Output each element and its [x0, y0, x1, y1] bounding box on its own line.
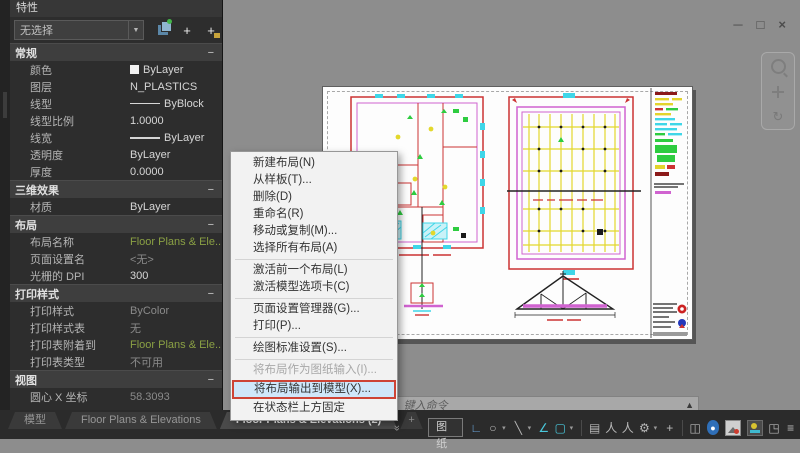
property-row-plot-attached[interactable]: 打印表附着到 Floor Plans & Ele... [10, 336, 222, 353]
property-value: <无> [130, 251, 154, 267]
property-row-transparency[interactable]: 透明度 ByLayer [10, 146, 222, 163]
property-value: Floor Plans & Ele... [130, 236, 222, 248]
paper-space-toggle[interactable]: 图纸 [428, 418, 463, 437]
menu-item-export-layout-to-model[interactable]: 将布局输出到模型(X)... [232, 380, 396, 399]
lineweight-swatch [130, 137, 160, 139]
close-icon[interactable]: × [778, 17, 786, 32]
menu-separator [235, 298, 393, 299]
property-value: 不可用 [130, 354, 163, 370]
property-label: 线型比例 [10, 113, 130, 129]
property-value: ByBlock [164, 98, 204, 110]
section-header-view[interactable]: 视图 − [10, 370, 222, 388]
property-label: 打印样式 [10, 303, 130, 319]
property-value: 无 [130, 320, 141, 336]
clean-screen-icon[interactable] [747, 420, 763, 436]
property-value: N_PLASTICS [130, 81, 197, 93]
ortho-mode-icon[interactable]: ╲ [511, 418, 526, 437]
separator [682, 420, 683, 436]
menu-item-activate-previous-layout[interactable]: 激活前一个布局(L) [231, 262, 397, 279]
property-value: ByLayer [164, 132, 204, 144]
property-value: Floor Plans & Ele... [130, 339, 222, 351]
orbit-icon[interactable]: ↻ [773, 110, 784, 123]
property-row-thickness[interactable]: 厚度 0.0000 [10, 163, 222, 180]
chevron-down-icon[interactable]: « [391, 424, 403, 430]
menu-separator [235, 259, 393, 260]
quick-select-icon[interactable] [154, 21, 172, 39]
property-label: 颜色 [10, 62, 130, 78]
linetype-swatch [130, 103, 160, 104]
property-label: 页面设置名 [10, 251, 130, 267]
menu-item-plot[interactable]: 打印(P)... [231, 318, 397, 335]
menu-item-new-layout[interactable]: 新建布局(N) [231, 155, 397, 172]
section-title: 三维效果 [15, 182, 59, 198]
property-row-page-setup[interactable]: 页面设置名 <无> [10, 250, 222, 267]
chevron-down-icon[interactable]: ▾ [502, 424, 509, 432]
chevron-down-icon[interactable]: ▼ [128, 21, 143, 39]
minimize-icon[interactable]: ─ [733, 17, 742, 32]
palette-grip[interactable] [0, 0, 10, 410]
property-label: 透明度 [10, 147, 130, 163]
menu-separator [235, 359, 393, 360]
collapse-icon[interactable]: − [208, 219, 214, 231]
collapse-icon[interactable]: − [208, 374, 214, 386]
scale-list-icon[interactable]: ◫ [688, 418, 703, 437]
property-label: 打印样式表 [10, 320, 130, 336]
selection-dropdown[interactable]: 无选择 ▼ [14, 20, 144, 40]
property-row-layout-name[interactable]: 布局名称 Floor Plans & Ele... [10, 233, 222, 250]
select-objects-icon[interactable]: + [178, 21, 196, 39]
polar-tracking-icon[interactable]: ∠ [536, 418, 551, 437]
menu-item-activate-model-tab[interactable]: 激活模型选项卡(C) [231, 279, 397, 296]
window-controls: ─ □ × [733, 17, 786, 32]
toggle-pickadd-icon[interactable]: + [202, 21, 220, 39]
collapse-icon[interactable]: − [208, 288, 214, 300]
property-label: 厚度 [10, 164, 130, 180]
property-row-raster-dpi[interactable]: 光栅的 DPI 300 [10, 267, 222, 284]
section-layout: 布局 − 布局名称 Floor Plans & Ele... 页面设置名 <无>… [10, 215, 222, 284]
navigation-bar[interactable]: ↻ [761, 52, 795, 130]
right-floor-plan [507, 93, 641, 279]
chevron-down-icon[interactable]: ▾ [654, 424, 661, 432]
section-3d-effects: 三维效果 − 材质 ByLayer [10, 180, 222, 215]
graphics-performance-icon[interactable]: ● [707, 420, 720, 435]
property-row-plot-table-type[interactable]: 打印表类型 不可用 [10, 353, 222, 370]
menu-item-import-layout-as-sheet: 将布局作为图纸输入(I)... [231, 362, 397, 379]
property-label: 打印表类型 [10, 354, 130, 370]
property-row-color[interactable]: 颜色 ByLayer [10, 61, 222, 78]
collapse-icon[interactable]: − [208, 184, 214, 196]
palette-title: 特性 [10, 0, 222, 17]
annotation-scale-icon[interactable]: 人 [620, 418, 635, 437]
annotation-visibility-icon[interactable]: ▤ [587, 418, 602, 437]
property-label: 圆心 X 坐标 [10, 389, 130, 405]
status-bar: « 图纸 ∟ ○ ▾ ╲ ▾ ∠ ▢ ▾ ▤ 人 人 ⚙ ▾ + ◫ ● ◳ ≡ [394, 418, 798, 437]
property-label: 打印表附着到 [10, 337, 130, 353]
isolate-objects-icon[interactable] [725, 420, 741, 436]
properties-palette: 特性 无选择 ▼ + + 常规 − 颜色 ByLayer 图层 [0, 0, 223, 410]
property-value: 300 [130, 270, 148, 282]
property-label: 线型 [10, 96, 130, 112]
property-value: ByLayer [130, 201, 170, 213]
property-value: 0.0000 [130, 166, 164, 178]
command-cursor-icon: ▲ [685, 400, 694, 410]
property-row-layer[interactable]: 图层 N_PLASTICS [10, 78, 222, 95]
tab-model[interactable]: 模型 [8, 412, 62, 429]
bottom-bar: 模型 Floor Plans & Elevations Floor Plans … [0, 410, 800, 439]
property-label: 材质 [10, 199, 130, 215]
property-row-plot-style[interactable]: 打印样式 ByColor [10, 302, 222, 319]
menu-separator [235, 337, 393, 338]
section-header-3d[interactable]: 三维效果 − [10, 180, 222, 198]
annotation-monitor-icon[interactable]: + [663, 418, 678, 437]
menu-item-rename[interactable]: 重命名(R) [231, 206, 397, 223]
chevron-down-icon[interactable]: ▾ [528, 424, 535, 432]
color-swatch [130, 65, 139, 74]
menu-item-dock-above-status-bar[interactable]: 在状态栏上方固定 [231, 400, 397, 417]
property-value: 1.0000 [130, 115, 164, 127]
separator [581, 420, 582, 436]
property-row-linetype-scale[interactable]: 线型比例 1.0000 [10, 112, 222, 129]
fullscreen-icon[interactable]: ◳ [767, 418, 782, 437]
property-row-linetype[interactable]: 线型 ByBlock [10, 95, 222, 112]
menu-item-drawing-standard-setup[interactable]: 绘图标准设置(S)... [231, 340, 397, 357]
section-title: 视图 [15, 372, 37, 388]
section-header-plot-style[interactable]: 打印样式 − [10, 284, 222, 302]
pan-icon[interactable] [772, 86, 784, 98]
section-general: 常规 − 颜色 ByLayer 图层 N_PLASTICS 线型 ByBlock… [10, 43, 222, 180]
section-view: 视图 − 圆心 X 坐标 58.3093 [10, 370, 222, 405]
autoscale-icon[interactable]: 人 [604, 418, 619, 437]
property-value: 58.3093 [130, 391, 170, 403]
property-row-plot-table[interactable]: 打印样式表 无 [10, 319, 222, 336]
property-row-lineweight[interactable]: 线宽 ByLayer [10, 129, 222, 146]
menu-item-from-template[interactable]: 从样板(T)... [231, 172, 397, 189]
section-title: 常规 [15, 45, 37, 61]
isodraft-icon[interactable]: ○ [486, 418, 501, 437]
section-header-general[interactable]: 常规 − [10, 43, 222, 61]
menu-item-move-copy[interactable]: 移动或复制(M)... [231, 223, 397, 240]
customization-icon[interactable]: ≡ [783, 418, 798, 437]
object-snap-icon[interactable]: ▢ [553, 418, 568, 437]
menu-item-select-all-layouts[interactable]: 选择所有布局(A) [231, 240, 397, 257]
layout-context-menu: 新建布局(N) 从样板(T)... 删除(D) 重命名(R) 移动或复制(M).… [230, 151, 398, 421]
property-label: 线宽 [10, 130, 130, 146]
collapse-icon[interactable]: − [208, 47, 214, 59]
restore-icon[interactable]: □ [757, 17, 765, 32]
property-value: ByLayer [143, 64, 183, 76]
property-row-material[interactable]: 材质 ByLayer [10, 198, 222, 215]
section-title: 布局 [15, 217, 37, 233]
section-plot-style: 打印样式 − 打印样式 ByColor 打印样式表 无 打印表附着到 Floor… [10, 284, 222, 370]
section-title: 打印样式 [15, 286, 59, 302]
chevron-down-icon[interactable]: ▾ [570, 424, 577, 432]
property-value: ByColor [130, 305, 169, 317]
property-label: 布局名称 [10, 234, 130, 250]
workspace-switching-icon[interactable]: ⚙ [637, 418, 652, 437]
property-value: ByLayer [130, 149, 170, 161]
property-label: 光栅的 DPI [10, 268, 130, 284]
zoom-icon[interactable] [771, 59, 786, 74]
title-block [651, 88, 687, 338]
snap-mode-icon[interactable]: ∟ [469, 418, 484, 437]
section-header-layout[interactable]: 布局 − [10, 215, 222, 233]
detail-drawing [404, 283, 443, 315]
property-label: 图层 [10, 79, 130, 95]
property-row-center-x[interactable]: 圆心 X 坐标 58.3093 [10, 388, 222, 405]
selection-value: 无选择 [15, 22, 128, 38]
menu-item-page-setup-manager[interactable]: 页面设置管理器(G)... [231, 301, 397, 318]
tab-floor-plans[interactable]: Floor Plans & Elevations [65, 412, 217, 429]
menu-item-delete[interactable]: 删除(D) [231, 189, 397, 206]
